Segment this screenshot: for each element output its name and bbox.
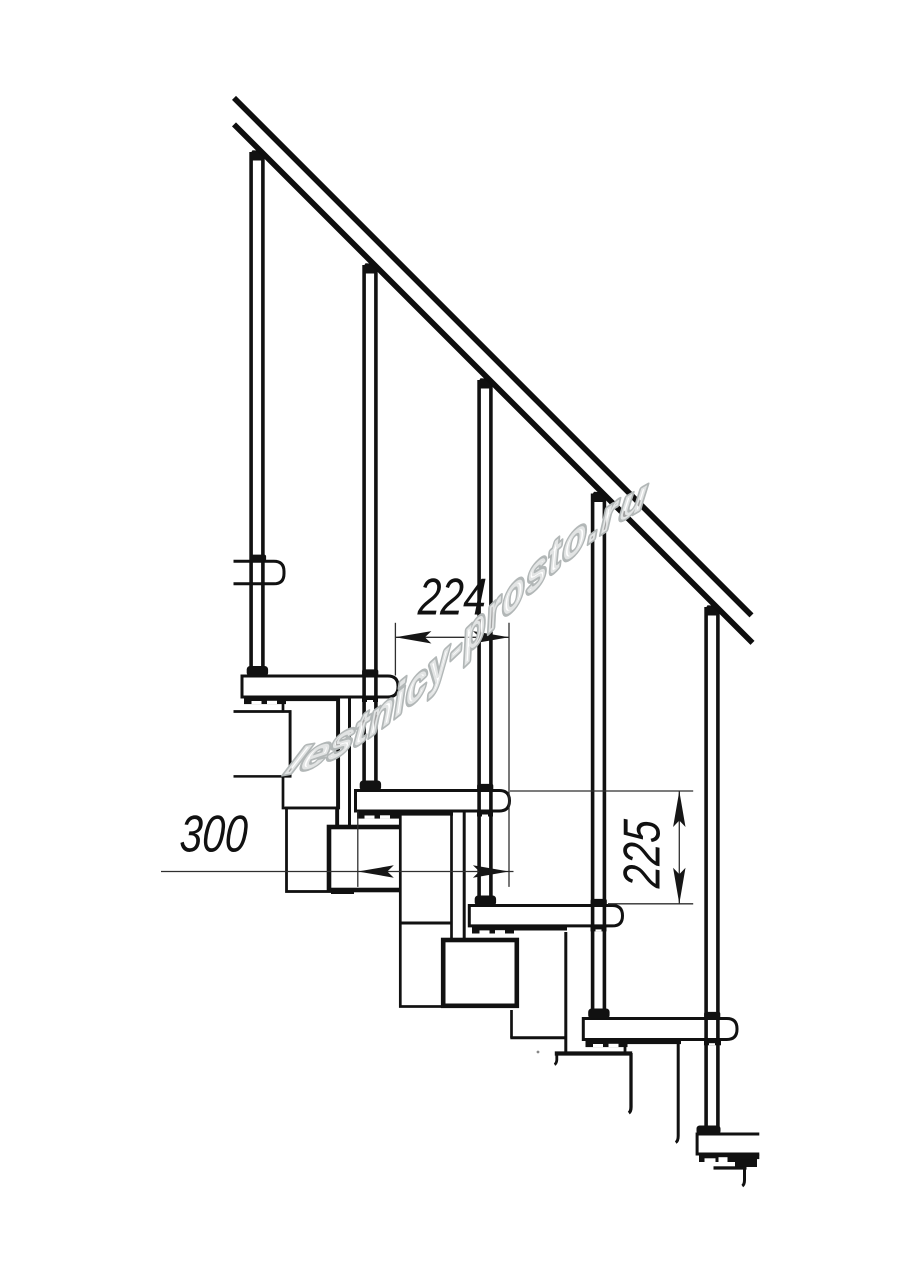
svg-text:300: 300 (178, 805, 249, 863)
svg-text:225: 225 (613, 817, 671, 890)
